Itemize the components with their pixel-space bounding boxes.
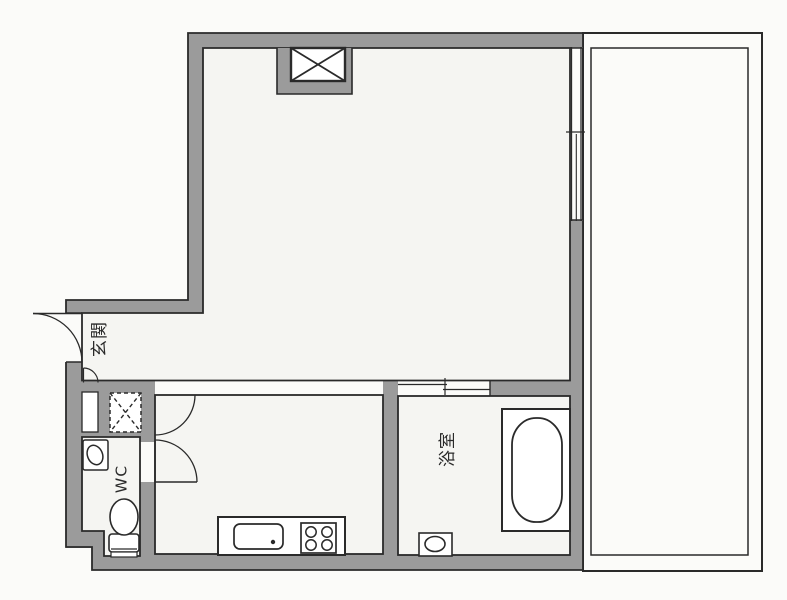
stove-burner xyxy=(306,527,316,537)
wall-top xyxy=(188,33,583,48)
kitchen-sink xyxy=(234,524,283,549)
wall-wc-divider-lower xyxy=(140,482,155,554)
toilet-base xyxy=(111,552,137,557)
bath-drain xyxy=(419,533,452,556)
balcony-inner-line xyxy=(591,48,748,555)
balcony-outer-line xyxy=(583,33,762,571)
sink-faucet-dot xyxy=(271,540,275,544)
stove-burner xyxy=(322,527,332,537)
washbasin xyxy=(83,440,108,470)
bathtub xyxy=(502,409,570,531)
entrance-door xyxy=(33,314,82,363)
kitchen-counter xyxy=(218,517,345,555)
wall-bath-top xyxy=(490,381,570,396)
toilet xyxy=(109,499,139,557)
wc-label: WC xyxy=(113,465,131,493)
entrance-door-arc xyxy=(33,314,82,363)
bathroom-label: 浴室 xyxy=(438,431,458,467)
meter-box xyxy=(82,392,98,432)
wall-entry-step xyxy=(66,300,203,313)
wall-left-lower xyxy=(66,362,82,547)
bathtub-basin xyxy=(512,418,562,522)
bath-drain-bowl xyxy=(425,537,445,552)
shaft-x-icon xyxy=(291,48,345,81)
wall-right xyxy=(570,220,583,555)
entrance-label: 玄関 xyxy=(90,321,110,357)
shaft-column xyxy=(277,48,352,94)
wall-left-upper xyxy=(188,33,203,313)
stove-burner xyxy=(322,540,332,550)
stove-burner xyxy=(306,540,316,550)
wall-bottom-left xyxy=(66,531,104,548)
ps-shaft-icon xyxy=(110,393,141,432)
wall-kitchen-bath-divider xyxy=(383,380,398,554)
floor-plan: 玄関 WC 浴室 xyxy=(0,0,787,600)
balcony xyxy=(583,33,762,571)
floor-main-room xyxy=(82,48,570,381)
toilet-bowl xyxy=(110,499,138,535)
wall-wc-divider-upper xyxy=(140,437,155,442)
